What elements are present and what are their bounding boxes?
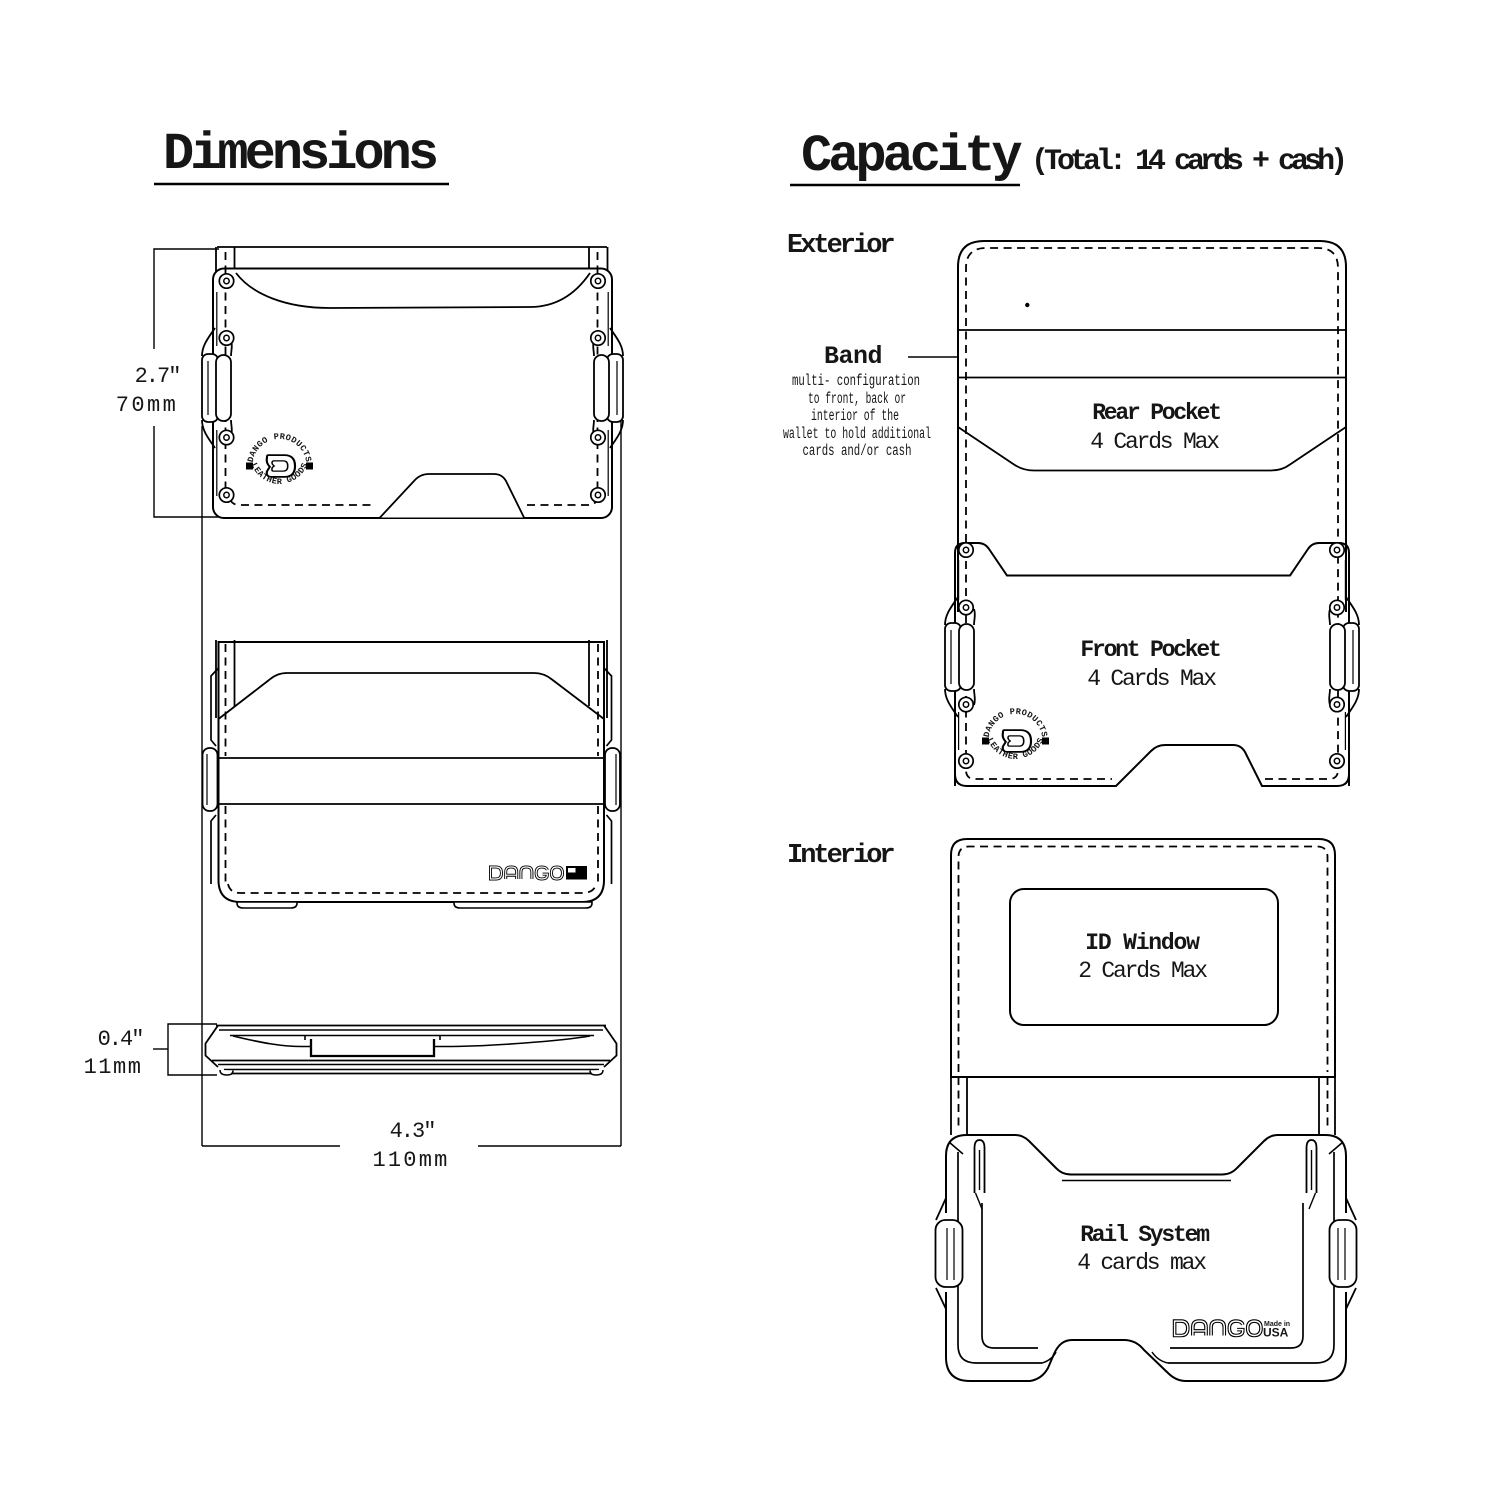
svg-text:USA: USA: [1263, 1326, 1289, 1340]
svg-text:Rail System: Rail System: [1080, 1222, 1209, 1248]
svg-text:0.4": 0.4": [98, 1027, 143, 1052]
svg-text:to front, back or: to front, back or: [808, 390, 906, 408]
svg-text:ID Window: ID Window: [1085, 930, 1200, 956]
svg-text:110mm: 110mm: [372, 1148, 449, 1173]
svg-text:multi- configuration: multi- configuration: [792, 372, 920, 390]
svg-text:4.3": 4.3": [390, 1119, 435, 1144]
svg-text:4 cards max: 4 cards max: [1077, 1250, 1206, 1276]
svg-text:wallet to hold additional: wallet to hold additional: [783, 425, 931, 443]
svg-text:Front Pocket: Front Pocket: [1080, 637, 1220, 663]
svg-text:interior of the: interior of the: [811, 407, 899, 425]
svg-text:4 Cards Max: 4 Cards Max: [1087, 666, 1216, 692]
svg-text:Interior: Interior: [787, 841, 894, 871]
svg-text:Band: Band: [824, 342, 882, 371]
svg-text:Capacity: Capacity: [801, 127, 1022, 186]
svg-text:Exterior: Exterior: [787, 231, 894, 261]
svg-text:2 Cards Max: 2 Cards Max: [1078, 958, 1207, 984]
svg-text:(Total: 14 cards + cash): (Total: 14 cards + cash): [1031, 145, 1343, 179]
svg-text:Dimensions: Dimensions: [163, 125, 437, 184]
svg-text:cards and/or cash: cards and/or cash: [803, 442, 912, 460]
svg-text:11mm: 11mm: [84, 1055, 143, 1080]
svg-text:70mm: 70mm: [116, 393, 178, 418]
svg-text:Rear Pocket: Rear Pocket: [1092, 400, 1220, 426]
svg-text:4 Cards Max: 4 Cards Max: [1090, 429, 1219, 455]
svg-text:2.7": 2.7": [135, 364, 180, 389]
